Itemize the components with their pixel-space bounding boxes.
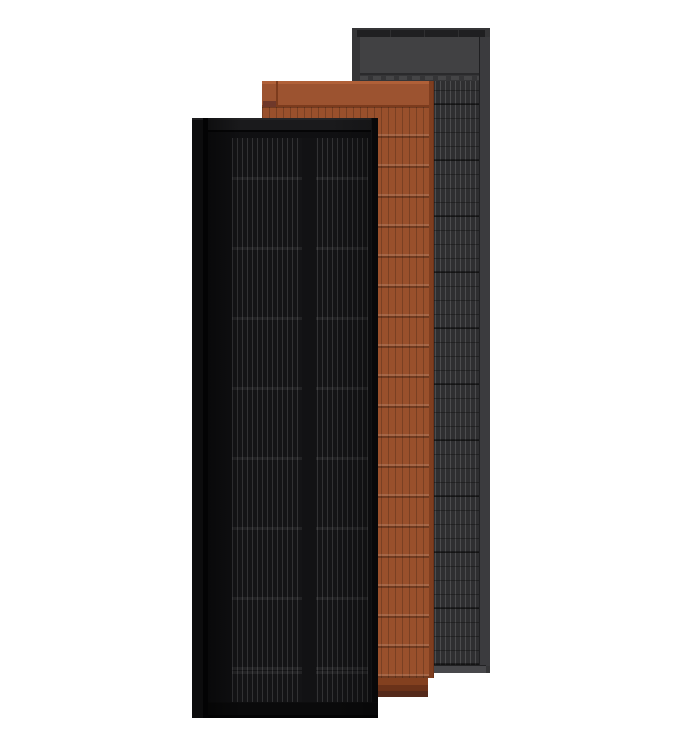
black-panel-right-rail (371, 118, 378, 718)
terracotta-top-band (262, 81, 431, 107)
black-panel-cell-grid (232, 138, 368, 702)
product-stage (0, 0, 684, 748)
gray-panel-top-rail (357, 30, 485, 37)
black-panel-left-rail (192, 118, 203, 718)
black-panel-top-lip (208, 118, 378, 132)
black-panel-body (208, 118, 378, 718)
terracotta-right-edge (429, 81, 434, 678)
solar-panel-black (192, 118, 378, 718)
gray-panel-right-rail (479, 37, 490, 666)
gray-panel-header (360, 37, 482, 75)
black-panel-bottom-rail (208, 702, 378, 718)
gray-panel-dash-row (360, 76, 480, 80)
black-panel-busbar-gap (302, 138, 316, 702)
